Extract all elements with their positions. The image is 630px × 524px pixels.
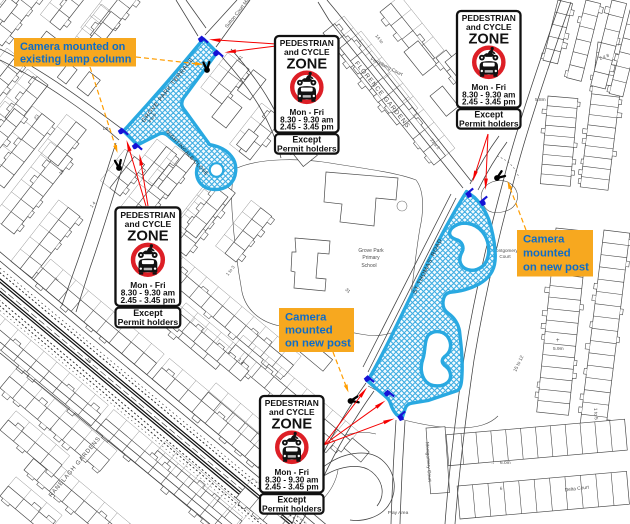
svg-text:ZONE: ZONE <box>127 229 168 245</box>
svg-text:Play Area: Play Area <box>388 510 409 516</box>
svg-text:Primary: Primary <box>362 255 380 261</box>
svg-text:ZONE: ZONE <box>272 416 313 432</box>
svg-text:on new post: on new post <box>523 262 589 274</box>
svg-text:→: → <box>490 460 495 466</box>
svg-text:Permit holders: Permit holders <box>118 317 179 327</box>
svg-text:Camera: Camera <box>285 312 327 324</box>
svg-text:ZONE: ZONE <box>469 31 510 47</box>
svg-text:1 to 5: 1 to 5 <box>592 408 599 421</box>
svg-text:Court: Court <box>499 254 511 259</box>
svg-text:mounted: mounted <box>523 248 571 260</box>
svg-text:5.9m: 5.9m <box>553 346 564 352</box>
svg-text:School: School <box>361 263 376 269</box>
svg-text:5.8m: 5.8m <box>535 97 546 103</box>
svg-text:Permit holders: Permit holders <box>459 118 519 128</box>
svg-text:+: + <box>556 338 560 344</box>
svg-text:mounted: mounted <box>285 325 333 337</box>
svg-text:on new post: on new post <box>285 338 351 350</box>
svg-text:6.0m: 6.0m <box>500 460 511 466</box>
svg-text:2.45 - 3.45 pm: 2.45 - 3.45 pm <box>120 295 175 305</box>
svg-text:Camera mounted on: Camera mounted on <box>20 41 125 53</box>
svg-text:Permit holders: Permit holders <box>262 503 322 513</box>
svg-text:LB: LB <box>103 126 109 131</box>
svg-text:Permit holders: Permit holders <box>277 143 337 153</box>
svg-text:2.45 - 3.45 pm: 2.45 - 3.45 pm <box>280 123 334 132</box>
svg-text:existing lamp column: existing lamp column <box>20 54 131 66</box>
svg-text:Grove Park: Grove Park <box>358 248 384 254</box>
svg-text:ZONE: ZONE <box>287 56 328 72</box>
svg-text:Camera: Camera <box>523 234 565 246</box>
svg-text:2.45 - 3.45 pm: 2.45 - 3.45 pm <box>265 483 319 492</box>
svg-text:2.45 - 3.45 pm: 2.45 - 3.45 pm <box>462 98 516 107</box>
